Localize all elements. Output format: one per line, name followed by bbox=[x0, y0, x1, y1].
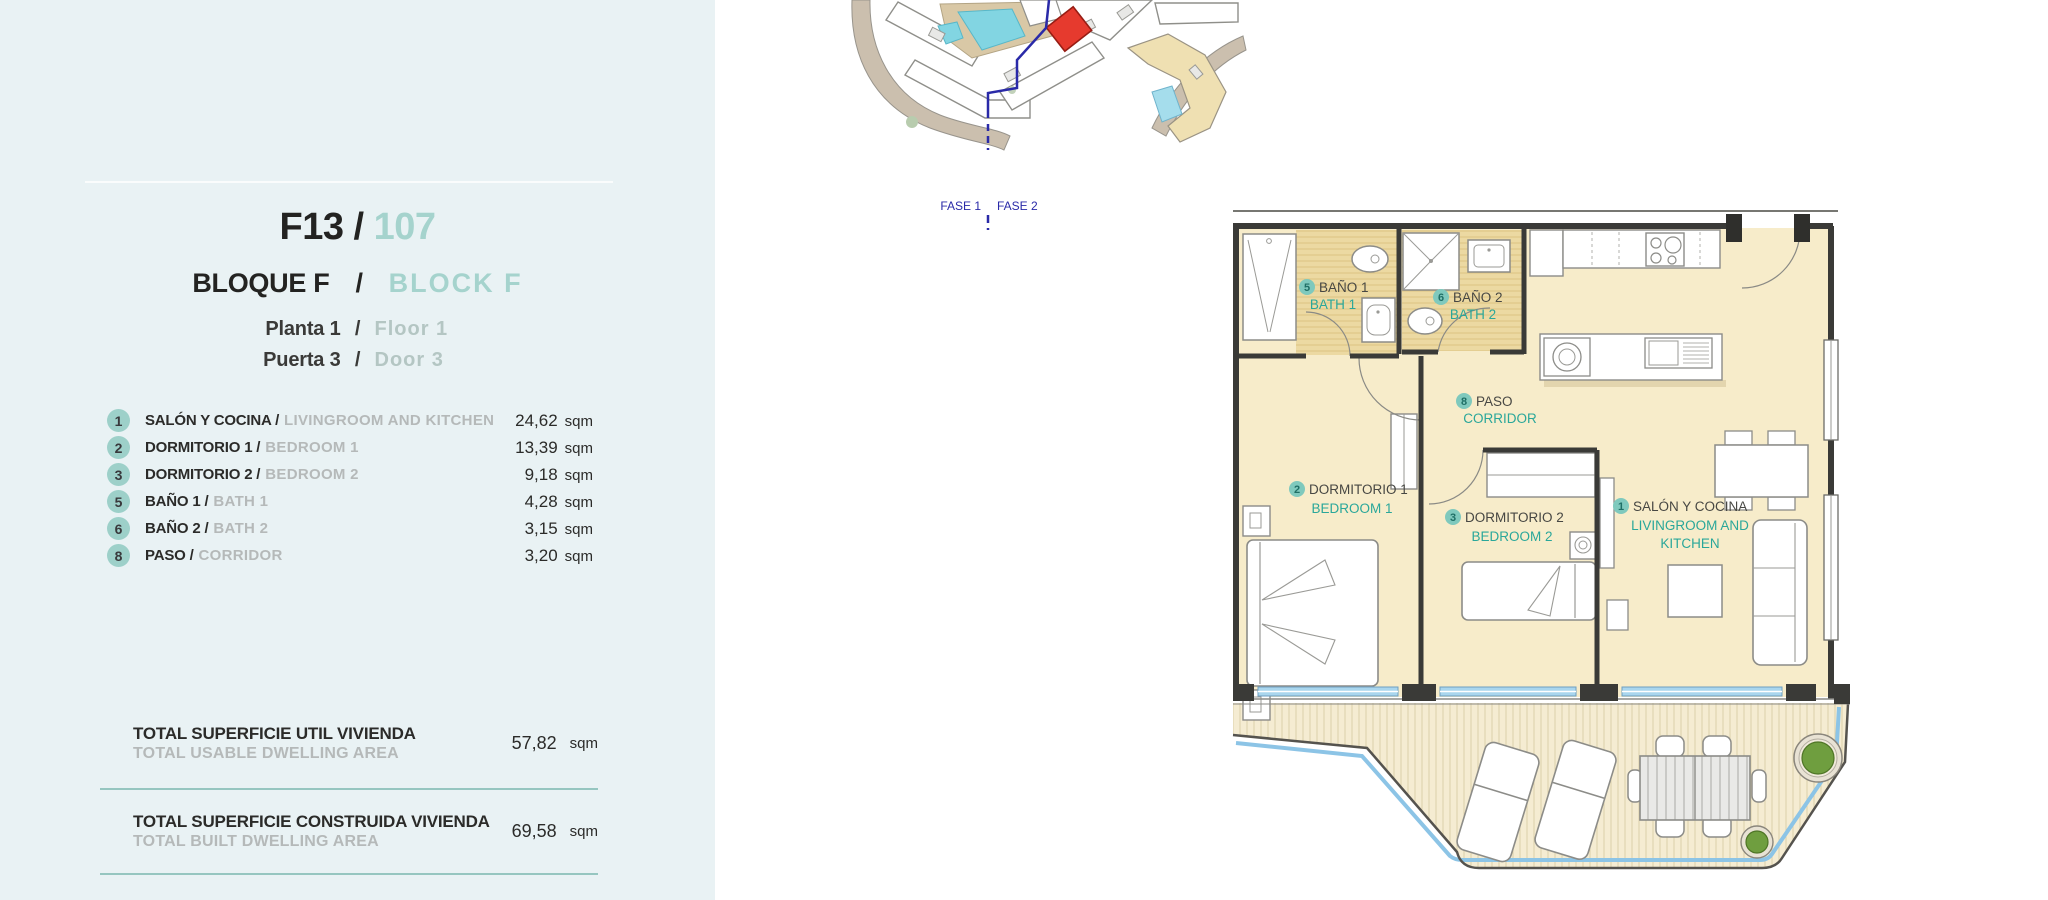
wardrobe-icon bbox=[1391, 414, 1417, 489]
kitchen-sink-icon bbox=[1645, 338, 1712, 368]
svg-text:BEDROOM 1: BEDROOM 1 bbox=[1311, 501, 1392, 516]
block-separator: / bbox=[355, 268, 362, 298]
svg-text:LIVINGROOM AND: LIVINGROOM AND bbox=[1631, 518, 1749, 533]
room-number-badge: 6 bbox=[107, 517, 130, 540]
side-table-icon bbox=[1570, 532, 1596, 559]
shower-icon bbox=[1243, 234, 1296, 340]
room-number-badge: 3 bbox=[107, 463, 130, 486]
unit-code: F13 bbox=[280, 206, 344, 248]
toilet-icon bbox=[1352, 246, 1388, 272]
svg-text:CORRIDOR: CORRIDOR bbox=[1463, 411, 1537, 426]
room-name-en: BATH 1 bbox=[213, 493, 268, 510]
total-value: 69,58 bbox=[512, 821, 557, 842]
floor-en: Floor 1 bbox=[375, 318, 615, 341]
room-list: 1 SALÓN Y COCINA /LIVINGROOM AND KITCHEN… bbox=[107, 407, 593, 569]
room-number-badge: 2 bbox=[107, 436, 130, 459]
room-name-en: BATH 2 bbox=[213, 520, 268, 537]
sink-icon bbox=[1362, 298, 1395, 342]
door-jamb bbox=[1794, 214, 1810, 242]
room-area: 9,18 bbox=[506, 465, 558, 485]
room-number-badge: 8 bbox=[107, 544, 130, 567]
door-en: Door 3 bbox=[375, 349, 615, 372]
room-name-es: SALÓN Y COCINA / bbox=[145, 412, 279, 429]
sink-icon bbox=[1468, 240, 1510, 272]
svg-text:BAÑO 1: BAÑO 1 bbox=[1319, 280, 1369, 295]
room-area: 4,28 bbox=[506, 492, 558, 512]
plan-sheet: FASE 1 FASE 2 bbox=[0, 0, 2048, 900]
room-area-unit: sqm bbox=[565, 548, 593, 565]
room-area: 3,15 bbox=[506, 519, 558, 539]
room-area-unit: sqm bbox=[565, 440, 593, 457]
room-row: 5 BAÑO 1 /BATH 1 4,28sqm bbox=[107, 488, 593, 515]
total-label-es: TOTAL SUPERFICIE UTIL VIVIENDA bbox=[133, 723, 512, 744]
unit-title: F13/107 bbox=[0, 206, 715, 249]
fase-1-label: FASE 1 bbox=[940, 199, 981, 213]
svg-text:2: 2 bbox=[1294, 484, 1300, 496]
svg-text:DORMITORIO 2: DORMITORIO 2 bbox=[1465, 510, 1564, 525]
room-name-es: DORMITORIO 2 / bbox=[145, 466, 260, 483]
svg-text:5: 5 bbox=[1304, 282, 1310, 294]
tv-sideboard-icon bbox=[1600, 478, 1614, 568]
block-title: BLOQUE F/BLOCK F bbox=[0, 268, 715, 299]
floor-row: Planta 1 / Floor 1 bbox=[0, 318, 715, 341]
svg-text:BATH 1: BATH 1 bbox=[1310, 297, 1356, 312]
total-value: 57,82 bbox=[512, 733, 557, 754]
door-row: Puerta 3 / Door 3 bbox=[0, 349, 715, 372]
room-area-unit: sqm bbox=[565, 413, 593, 430]
totals-divider bbox=[100, 788, 598, 790]
island-shadow bbox=[1544, 380, 1726, 387]
window-icon bbox=[1258, 687, 1782, 696]
terrace-windows bbox=[1233, 684, 1850, 704]
door-jamb bbox=[1726, 214, 1742, 242]
total-label-en: TOTAL USABLE DWELLING AREA bbox=[133, 744, 512, 764]
block-en: BLOCK F bbox=[389, 268, 523, 298]
svg-text:6: 6 bbox=[1438, 292, 1444, 304]
total-terrace-row: TOTAL SUPERFICIE CONSTRUIDA TERRAZA bbox=[133, 880, 598, 900]
room-row: 6 BAÑO 2 /BATH 2 3,15sqm bbox=[107, 515, 593, 542]
total-label-en: TOTAL BUILT DWELLING AREA bbox=[133, 832, 512, 852]
total-label-es: TOTAL SUPERFICIE CONSTRUIDA VIVIENDA bbox=[133, 811, 512, 832]
terrace bbox=[1233, 703, 1848, 868]
room-area-unit: sqm bbox=[565, 467, 593, 484]
total-built-row: TOTAL SUPERFICIE CONSTRUIDA VIVIENDA TOT… bbox=[133, 800, 598, 862]
room-name-en: BEDROOM 2 bbox=[265, 466, 359, 483]
room-name-en: BEDROOM 1 bbox=[265, 439, 359, 456]
room-area: 24,62 bbox=[506, 411, 558, 431]
room-row: 3 DORMITORIO 2 /BEDROOM 2 9,18sqm bbox=[107, 461, 593, 488]
fase-2-label: FASE 2 bbox=[997, 199, 1038, 213]
svg-text:DORMITORIO 1: DORMITORIO 1 bbox=[1309, 482, 1408, 497]
info-panel: F13/107 BLOQUE F/BLOCK F Planta 1 / Floo… bbox=[0, 0, 715, 900]
room-name-es: BAÑO 2 / bbox=[145, 520, 208, 537]
totals-divider bbox=[100, 873, 598, 875]
total-unit: sqm bbox=[570, 735, 598, 752]
room-name-es: DORMITORIO 1 / bbox=[145, 439, 260, 456]
bed-icon bbox=[1247, 540, 1378, 686]
sofa-icon bbox=[1753, 520, 1807, 665]
door-separator: / bbox=[341, 349, 375, 372]
room-name-es: BAÑO 1 / bbox=[145, 493, 208, 510]
room-row: 2 DORMITORIO 1 /BEDROOM 1 13,39sqm bbox=[107, 434, 593, 461]
room-name-en: LIVINGROOM AND KITCHEN bbox=[284, 412, 494, 429]
svg-text:KITCHEN: KITCHEN bbox=[1660, 536, 1719, 551]
room-number-badge: 1 bbox=[107, 409, 130, 432]
room-row: 8 PASO /CORRIDOR 3,20sqm bbox=[107, 542, 593, 569]
unit-number: 107 bbox=[374, 206, 436, 248]
block-es: BLOQUE F bbox=[192, 268, 329, 298]
total-usable-row: TOTAL SUPERFICIE UTIL VIVIENDA TOTAL USA… bbox=[133, 712, 598, 774]
floor-separator: / bbox=[341, 318, 375, 341]
stove-icon bbox=[1646, 233, 1684, 266]
toilet-icon bbox=[1408, 308, 1442, 334]
svg-text:1: 1 bbox=[1618, 501, 1624, 513]
room-area-unit: sqm bbox=[565, 494, 593, 511]
room-area: 13,39 bbox=[506, 438, 558, 458]
shower-icon bbox=[1403, 233, 1459, 290]
room-area: 3,20 bbox=[506, 546, 558, 566]
bed-icon bbox=[1462, 562, 1596, 620]
floor-es: Planta 1 bbox=[101, 318, 341, 341]
svg-text:3: 3 bbox=[1450, 512, 1456, 524]
door-es: Puerta 3 bbox=[101, 349, 341, 372]
coffee-table-icon bbox=[1668, 565, 1722, 617]
total-unit: sqm bbox=[570, 823, 598, 840]
room-row: 1 SALÓN Y COCINA /LIVINGROOM AND KITCHEN… bbox=[107, 407, 593, 434]
room-name-en: CORRIDOR bbox=[199, 547, 283, 564]
site-map: FASE 1 FASE 2 bbox=[852, 0, 1246, 230]
room-area-unit: sqm bbox=[565, 521, 593, 538]
svg-text:BATH 2: BATH 2 bbox=[1450, 307, 1496, 322]
floor-plan: 5 BAÑO 1 BATH 1 6 BAÑO 2 BATH 2 8 PASO C… bbox=[1233, 211, 1850, 868]
closet-icon bbox=[1487, 453, 1595, 497]
room-number-badge: 5 bbox=[107, 490, 130, 513]
svg-text:PASO: PASO bbox=[1476, 394, 1513, 409]
svg-text:BEDROOM 2: BEDROOM 2 bbox=[1471, 529, 1552, 544]
svg-text:BAÑO 2: BAÑO 2 bbox=[1453, 290, 1503, 305]
washing-machine-icon bbox=[1544, 338, 1590, 376]
panel-divider bbox=[85, 181, 613, 183]
room-name-es: PASO / bbox=[145, 547, 194, 564]
title-separator: / bbox=[354, 206, 364, 248]
site-green-icon bbox=[906, 116, 918, 128]
side-table-icon bbox=[1607, 600, 1628, 630]
svg-text:8: 8 bbox=[1461, 396, 1467, 408]
svg-text:SALÓN Y COCINA: SALÓN Y COCINA bbox=[1633, 499, 1747, 514]
